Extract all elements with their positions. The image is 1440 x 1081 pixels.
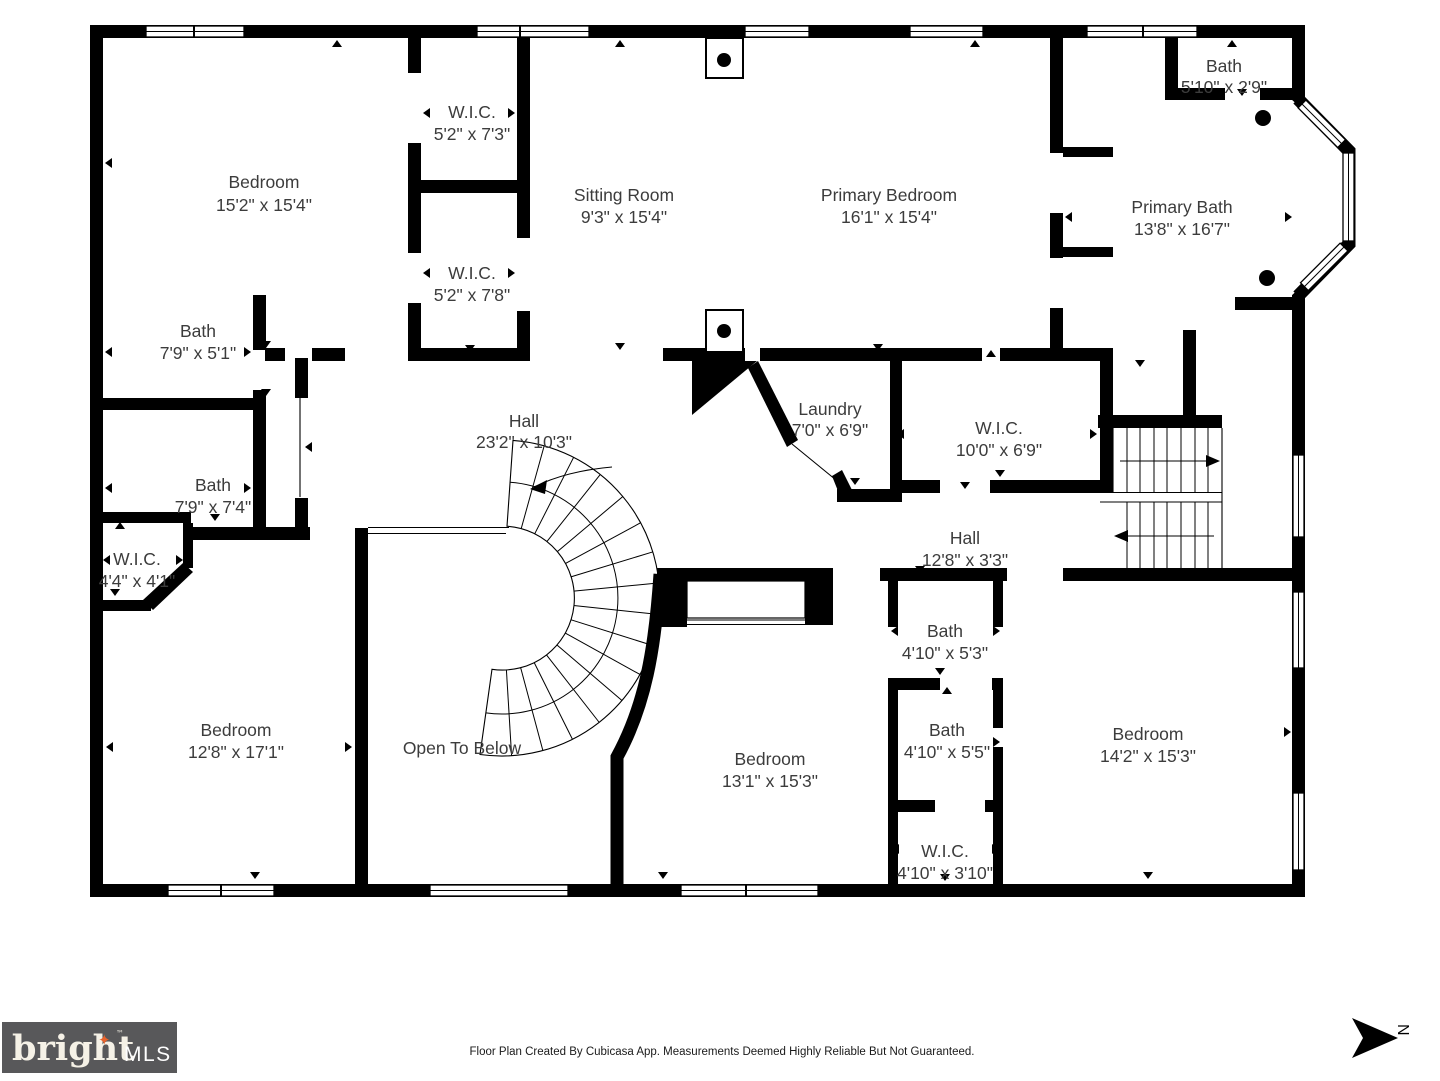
- brightmls-logo: bright ✦ ™ MLS: [2, 1022, 177, 1073]
- svg-text:W.I.C.: W.I.C.: [448, 102, 496, 122]
- svg-text:15'2" x 15'4": 15'2" x 15'4": [216, 195, 312, 215]
- room-label-bath-center-upper: Bath4'10" x 5'3": [902, 621, 988, 663]
- window: [1293, 793, 1304, 870]
- svg-text:Bedroom: Bedroom: [200, 720, 271, 740]
- svg-text:10'0" x 6'9": 10'0" x 6'9": [956, 440, 1042, 460]
- room-label-bath-mid-left-upper: Bath7'9" x 5'1": [160, 321, 237, 363]
- svg-text:W.I.C.: W.I.C.: [975, 418, 1023, 438]
- room-label-hall-main: Hall23'2" x 10'3": [476, 411, 572, 452]
- svg-text:Hall: Hall: [950, 528, 980, 548]
- curved-staircase: [368, 440, 660, 884]
- svg-text:Bath: Bath: [929, 720, 965, 740]
- room-label-bath-top-right: Bath5'10" x 2'9": [1181, 56, 1267, 97]
- svg-text:12'8" x 17'1": 12'8" x 17'1": [188, 742, 284, 762]
- bay-window-glass: [1343, 153, 1354, 241]
- room-label-wic-center: W.I.C.10'0" x 6'9": [956, 418, 1042, 460]
- svg-text:4'10" x 5'3": 4'10" x 5'3": [902, 643, 988, 663]
- svg-text:4'10" x 3'10": 4'10" x 3'10": [897, 863, 993, 883]
- svg-text:7'9" x 7'4": 7'9" x 7'4": [175, 497, 252, 517]
- svg-text:5'10" x 2'9": 5'10" x 2'9": [1181, 77, 1267, 97]
- room-label-sitting-room: Sitting Room9'3" x 15'4": [574, 185, 674, 227]
- svg-text:Primary Bath: Primary Bath: [1131, 197, 1232, 217]
- svg-text:9'3" x 15'4": 9'3" x 15'4": [581, 207, 667, 227]
- room-label-wic-top-upper: W.I.C.5'2" x 7'3": [434, 102, 511, 144]
- room-label-open-to-below: Open To Below: [403, 738, 522, 758]
- svg-text:Bath: Bath: [927, 621, 963, 641]
- room-label-bedroom-top-left: Bedroom15'2" x 15'4": [216, 172, 312, 215]
- svg-text:Bedroom: Bedroom: [1112, 724, 1183, 744]
- svg-text:5'2" x 7'3": 5'2" x 7'3": [434, 124, 511, 144]
- room-label-primary-bedroom: Primary Bedroom16'1" x 15'4": [821, 185, 957, 227]
- north-arrow: N: [1352, 1018, 1411, 1058]
- room-label-bath-center-lower: Bath4'10" x 5'5": [904, 720, 990, 762]
- laundry-door-leaf: [792, 444, 836, 480]
- chimney-box: [706, 38, 743, 78]
- stair-wall: [617, 574, 660, 884]
- floor-plan-svg: Bedroom15'2" x 15'4" W.I.C.5'2" x 7'3" W…: [0, 0, 1440, 1081]
- window: [477, 26, 589, 37]
- light-fixture: [1259, 270, 1275, 286]
- svg-text:7'0" x 6'9": 7'0" x 6'9": [792, 420, 869, 440]
- svg-text:Primary Bedroom: Primary Bedroom: [821, 185, 957, 205]
- window: [430, 885, 568, 896]
- disclaimer-text: Floor Plan Created By Cubicasa App. Meas…: [470, 1046, 975, 1058]
- window: [1293, 592, 1304, 668]
- svg-text:Sitting Room: Sitting Room: [574, 185, 674, 205]
- svg-text:W.I.C.: W.I.C.: [113, 549, 161, 569]
- room-labels: Bedroom15'2" x 15'4" W.I.C.5'2" x 7'3" W…: [99, 56, 1267, 883]
- room-label-bedroom-bottom-right: Bedroom14'2" x 15'3": [1100, 724, 1196, 766]
- svg-text:14'2" x 15'3": 14'2" x 15'3": [1100, 746, 1196, 766]
- svg-text:Bath: Bath: [1206, 56, 1242, 76]
- straight-staircase: [1100, 428, 1222, 568]
- window: [1087, 26, 1197, 37]
- svg-text:W.I.C.: W.I.C.: [921, 841, 969, 861]
- svg-text:7'9" x 5'1": 7'9" x 5'1": [160, 343, 237, 363]
- room-label-wic-top-lower: W.I.C.5'2" x 7'8": [434, 263, 511, 305]
- closet-interior: [687, 581, 805, 618]
- svg-text:13'8" x 16'7": 13'8" x 16'7": [1134, 219, 1230, 239]
- svg-text:23'2" x 10'3": 23'2" x 10'3": [476, 432, 572, 452]
- svg-text:Bath: Bath: [195, 475, 231, 495]
- svg-text:4'10" x 5'5": 4'10" x 5'5": [904, 742, 990, 762]
- svg-text:MLS: MLS: [124, 1043, 172, 1066]
- svg-text:Bedroom: Bedroom: [734, 749, 805, 769]
- logo-star-icon: ✦: [98, 1031, 111, 1049]
- svg-text:W.I.C.: W.I.C.: [448, 263, 496, 283]
- room-label-bedroom-bottom-mid: Bedroom13'1" x 15'3": [722, 749, 818, 791]
- window: [168, 885, 274, 896]
- room-label-primary-bath: Primary Bath13'8" x 16'7": [1131, 197, 1232, 239]
- svg-text:5'2" x 7'8": 5'2" x 7'8": [434, 285, 511, 305]
- room-label-bedroom-bottom-left: Bedroom12'8" x 17'1": [188, 720, 284, 762]
- room-label-wic-bottom-mid: W.I.C.4'10" x 3'10": [897, 841, 993, 883]
- svg-text:Bath: Bath: [180, 321, 216, 341]
- window: [146, 26, 244, 37]
- svg-text:12'8" x 3'3": 12'8" x 3'3": [922, 550, 1008, 570]
- window: [681, 885, 818, 896]
- room-label-laundry: Laundry7'0" x 6'9": [792, 399, 869, 440]
- north-arrow-icon: [1352, 1018, 1398, 1058]
- svg-text:™: ™: [116, 1029, 124, 1038]
- room-label-wic-mid-left: W.I.C.4'4" x 4'1": [99, 549, 176, 591]
- svg-text:Bedroom: Bedroom: [228, 172, 299, 192]
- window: [745, 26, 809, 37]
- svg-text:4'4" x 4'1": 4'4" x 4'1": [99, 571, 176, 591]
- room-label-hall-small: Hall12'8" x 3'3": [922, 528, 1008, 570]
- window: [910, 26, 983, 37]
- room-label-bath-mid-left-lower: Bath7'9" x 7'4": [175, 475, 252, 517]
- svg-text:Laundry: Laundry: [798, 399, 861, 419]
- window: [1293, 455, 1304, 537]
- light-fixture: [1255, 110, 1271, 126]
- chimney-box: [706, 310, 743, 352]
- svg-text:Open To Below: Open To Below: [403, 738, 522, 758]
- svg-text:13'1" x 15'3": 13'1" x 15'3": [722, 771, 818, 791]
- svg-text:16'1" x 15'4": 16'1" x 15'4": [841, 207, 937, 227]
- north-label: N: [1394, 1024, 1411, 1036]
- svg-text:Hall: Hall: [509, 411, 539, 431]
- footer: bright ✦ ™ MLS Floor Plan Created By Cub…: [2, 1018, 1411, 1073]
